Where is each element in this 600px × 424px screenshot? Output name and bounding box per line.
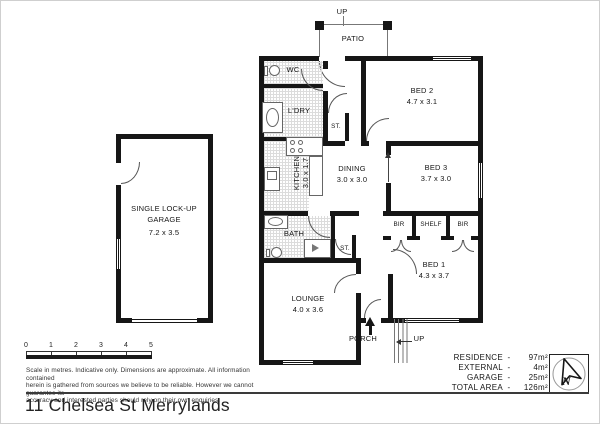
wall [116,139,121,163]
garage-label: GARAGE [147,215,180,224]
wall [313,360,361,365]
bir-label: BIR [393,220,404,229]
area-value: 97m² [515,353,548,362]
bed1-dim: 4.3 x 3.7 [419,271,450,280]
area-label: EXTERNAL [431,363,503,372]
wall [116,269,121,323]
patio-post [383,21,392,30]
scale-tick-label: 1 [49,342,53,349]
stove-icon [290,148,295,153]
scale-bar [26,351,152,352]
bed3-dim: 3.7 x 3.0 [421,174,452,183]
door-arc [121,162,140,184]
wall [478,61,483,163]
door-arc [364,299,381,318]
window [433,56,471,61]
kitchen-label: KITCHEN3.0 x 1.7 [292,156,310,190]
kitchen-sink-icon [267,171,277,180]
wall [361,61,366,141]
scale-tick-label: 5 [149,342,153,349]
area-label: GARAGE [431,373,503,382]
slider-door-line [388,158,389,182]
compass-n-label: N [561,374,572,388]
scale-tick-label: 0 [24,342,28,349]
table-row: EXTERNAL - 4m² [431,362,548,372]
porch-label: PORCH [349,334,377,343]
stove-icon [290,140,295,145]
area-label: RESIDENCE [431,353,503,362]
wall [361,141,369,146]
patio-up-label: UP [337,7,348,16]
toilet-icon [266,249,270,257]
wall [352,235,356,258]
shelf-label: SHELF [420,220,441,229]
wall [116,318,132,323]
shower-icon [312,244,319,252]
divider [26,392,589,394]
wall [259,258,361,263]
wall [331,216,335,258]
area-dash: - [503,373,515,382]
dining-label: DINING [338,164,365,173]
lounge-dim: 4.0 x 3.6 [293,305,324,314]
door-arc [366,118,389,141]
scale-bar [26,355,152,359]
floor-plan-page: UP PATIO WC L'DRY ST. BED 2 4.7 x 3.1 KI… [0,0,600,424]
area-dash: - [503,353,515,362]
stove-icon [298,148,303,153]
wall [323,141,345,146]
store-label: ST. [340,244,350,253]
wall [323,91,328,141]
scale-tick-label: 2 [74,342,78,349]
window [116,239,121,269]
bed2-label: BED 2 [411,86,434,95]
wall [388,274,393,318]
wall [356,263,361,274]
toilet-icon [269,65,280,76]
lounge-label: LOUNGE [292,294,325,303]
table-row: RESIDENCE - 97m² [431,352,548,362]
wall [116,134,213,139]
scale-tick-label: 4 [124,342,128,349]
kitchen-bench [309,156,323,196]
porch-up-arrow-icon [365,317,375,326]
patio-label: PATIO [342,34,364,43]
bir-label: BIR [457,220,468,229]
wall [208,139,213,323]
wall [345,56,433,61]
vanity-icon [268,217,283,226]
area-dash: - [503,363,515,372]
door-arc [393,249,417,274]
wall [383,236,391,240]
laundry-tub-icon [266,108,279,127]
area-label: TOTAL AREA [431,383,503,392]
table-row: GARAGE - 25m² [431,372,548,382]
garage-door [132,319,197,323]
wall [345,113,349,141]
wall [264,137,286,141]
window [283,360,313,365]
wall [446,216,450,236]
area-value: 4m² [515,363,548,372]
wall [459,318,483,323]
bath-label: BATH [284,229,304,238]
wall [389,141,478,146]
north-compass-icon: N [549,354,589,394]
bed1-label: BED 1 [423,260,446,269]
laundry-label: L'DRY [288,106,310,115]
wall [323,61,328,69]
kitchen-dim: 3.0 x 1.7 [301,156,310,190]
patio-post [315,21,324,30]
window [405,318,459,323]
wall [381,318,393,323]
bed2-dim: 4.7 x 3.1 [407,97,438,106]
wall [356,293,361,360]
bed3-label: BED 3 [425,163,448,172]
porch-up-direction-icon [396,339,401,345]
door-arc [334,274,356,293]
toilet-icon [264,66,268,76]
area-dash: - [503,383,515,392]
wc-label: WC [287,65,300,74]
garage-dim: 7.2 x 3.5 [149,228,180,237]
scale-tick-label: 3 [99,342,103,349]
wall [197,318,213,323]
robe-door-arc [452,240,463,252]
stove-icon [298,140,303,145]
porch-up-direction-icon [401,341,412,342]
wall [478,198,483,323]
porch-up-label: UP [414,334,425,343]
address: 11 Chelsea St Merrylands [25,395,230,416]
area-value: 25m² [515,373,548,382]
dining-dim: 3.0 x 3.0 [337,175,368,184]
wall [383,211,478,216]
area-table: RESIDENCE - 97m² EXTERNAL - 4m² GARAGE -… [431,352,548,392]
wall [412,216,416,236]
kitchen-name: KITCHEN [292,156,301,190]
door-arc [328,93,347,113]
disclaimer-line: Scale in metres. Indicative only. Dimens… [26,367,276,382]
wall [116,185,121,239]
wall [386,183,391,211]
robe-door-arc [463,240,474,252]
wall [259,360,283,365]
store-label: ST. [331,122,341,131]
slider-door-arrow-icon [385,152,391,158]
garage-label: SINGLE LOCK-UP [131,204,197,213]
window [478,163,483,198]
table-row: TOTAL AREA - 126m² [431,382,548,392]
toilet-icon [271,247,282,258]
area-value: 126m² [515,383,548,392]
